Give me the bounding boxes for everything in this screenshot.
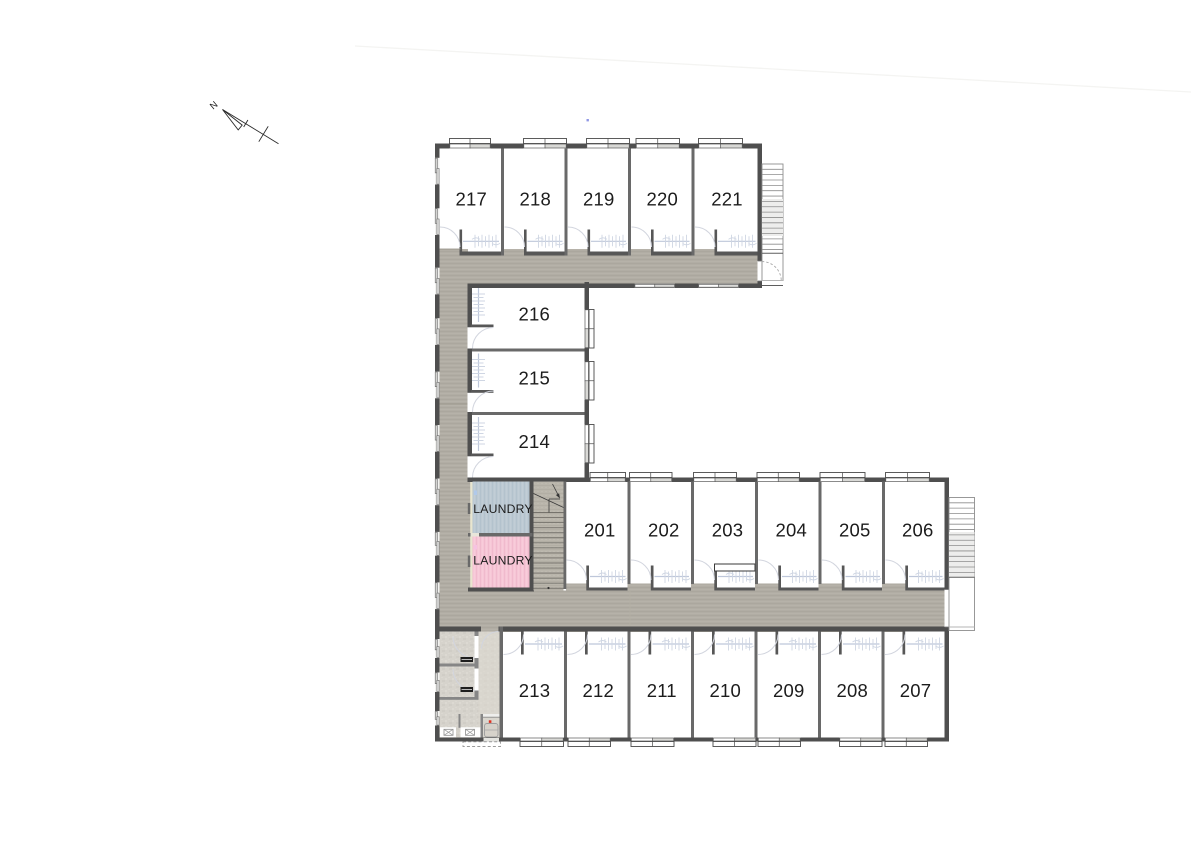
- svg-text:212: 212: [583, 680, 614, 701]
- svg-text:219: 219: [583, 189, 614, 210]
- svg-text:204: 204: [776, 520, 807, 541]
- svg-text:LAUNDRY: LAUNDRY: [473, 554, 532, 568]
- svg-text:220: 220: [647, 189, 678, 210]
- svg-text:214: 214: [519, 431, 550, 452]
- svg-text:207: 207: [900, 680, 931, 701]
- svg-text:211: 211: [647, 680, 677, 701]
- svg-text:203: 203: [712, 520, 743, 541]
- svg-text:208: 208: [837, 680, 868, 701]
- svg-text:221: 221: [711, 189, 742, 210]
- svg-text:213: 213: [519, 680, 550, 701]
- svg-text:205: 205: [839, 520, 870, 541]
- svg-text:202: 202: [648, 520, 679, 541]
- svg-text:218: 218: [520, 189, 551, 210]
- svg-text:210: 210: [710, 680, 741, 701]
- svg-text:LAUNDRY: LAUNDRY: [473, 502, 532, 516]
- svg-text:217: 217: [456, 189, 487, 210]
- svg-text:216: 216: [519, 304, 550, 325]
- svg-text:215: 215: [519, 368, 550, 389]
- svg-text:201: 201: [584, 520, 615, 541]
- svg-text:206: 206: [902, 520, 933, 541]
- svg-text:209: 209: [773, 680, 804, 701]
